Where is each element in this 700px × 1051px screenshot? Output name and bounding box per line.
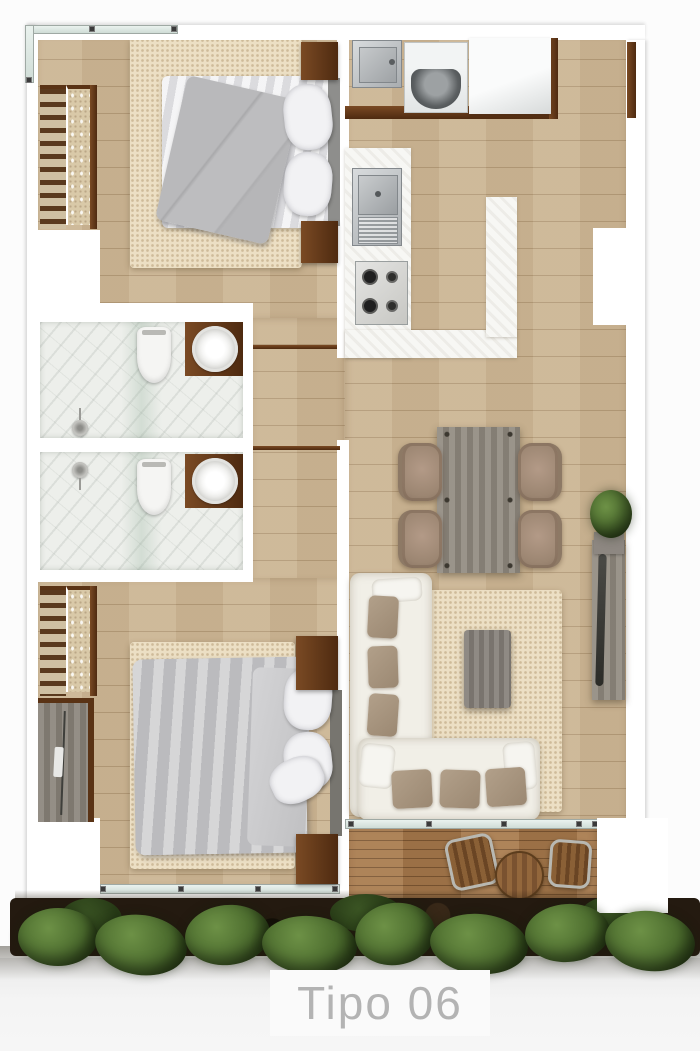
bathroom2-basin — [192, 458, 238, 504]
bathroom2-shower-arm — [79, 478, 81, 490]
washer-drum — [411, 69, 461, 109]
sofa-cushion — [367, 693, 400, 737]
bedroom2-closet-shelves — [66, 586, 90, 692]
sofa-cushion — [485, 767, 528, 808]
balcony-side-wall — [597, 818, 668, 913]
window-marker — [501, 821, 507, 827]
bathroom1-shower-arm — [79, 408, 81, 420]
bedroom2-closet-frame — [90, 586, 97, 696]
window-marker — [576, 821, 582, 827]
coffee-table — [464, 630, 511, 708]
faucet-icon — [375, 191, 381, 197]
potted-plant — [590, 490, 632, 538]
bathroom1-shower-head — [72, 420, 88, 436]
bedroom1-bathroom-wall — [27, 303, 253, 318]
bedroom2-nightstand — [296, 636, 338, 690]
hall-door-header-2 — [253, 446, 340, 450]
window-marker — [171, 26, 177, 32]
sofa-back-pillow — [358, 742, 396, 789]
sofa-cushion — [367, 595, 399, 639]
bathroom1-toilet — [137, 327, 171, 383]
wall-right — [626, 40, 645, 823]
bedroom1-nightstand — [301, 221, 338, 263]
stove — [355, 261, 408, 325]
floorplan-canvas: Tipo 06 — [0, 0, 700, 1051]
sliding-door-balcony — [345, 819, 600, 829]
bedroom1-closet — [40, 85, 66, 229]
central-wall-lower — [337, 440, 349, 908]
plan-title-text: Tipo 06 — [297, 976, 463, 1030]
laundry-sink-basin — [359, 47, 397, 83]
shrub — [18, 908, 98, 966]
kitchen-sink — [352, 168, 402, 246]
bathroom1-basin — [192, 326, 238, 372]
bedroom2-closet — [40, 586, 66, 696]
dining-chair — [398, 443, 442, 501]
right-wall-accent — [627, 42, 636, 118]
washing-machine — [404, 42, 468, 113]
window-marker — [89, 26, 95, 32]
faucet-icon — [389, 59, 395, 65]
laundry-sink — [352, 40, 402, 88]
stove-burner — [362, 298, 378, 314]
bedroom1-nightstand — [301, 42, 338, 80]
window-marker — [426, 821, 432, 827]
dining-chair — [518, 510, 562, 568]
bathroom2-shower-head — [72, 462, 88, 478]
window-left — [25, 25, 34, 83]
kitchen-counter-top — [469, 38, 551, 114]
sofa-cushion — [391, 769, 433, 809]
stove-burner — [362, 269, 378, 285]
wall-right-protrusion — [593, 228, 628, 325]
bedroom1-closet-frame — [90, 85, 97, 229]
wardrobe-handle — [53, 747, 64, 777]
kitchen-counter-right — [486, 197, 517, 337]
bedroom1-closet-shelves — [66, 85, 90, 225]
kitchen-sink-drainboard — [358, 217, 398, 244]
bathroom2-toilet — [137, 459, 171, 515]
window-top — [27, 25, 178, 34]
dining-chair — [398, 510, 442, 568]
wardrobe — [38, 698, 94, 822]
window-marker — [26, 77, 32, 83]
sofa-cushion — [439, 769, 480, 808]
plan-title: Tipo 06 — [270, 970, 490, 1036]
stove-burner — [386, 271, 398, 283]
hall-door-header-1 — [253, 345, 337, 349]
dining-table — [437, 427, 520, 573]
stove-burner — [386, 300, 398, 312]
lounge-chair — [443, 832, 501, 893]
bedroom2-nightstand — [296, 834, 338, 884]
lounge-chair — [547, 839, 592, 890]
bed1-headboard — [328, 78, 340, 226]
hallway-floor — [250, 318, 345, 583]
window-marker — [348, 821, 354, 827]
dining-chair — [518, 443, 562, 501]
sofa-cushion — [367, 645, 398, 688]
